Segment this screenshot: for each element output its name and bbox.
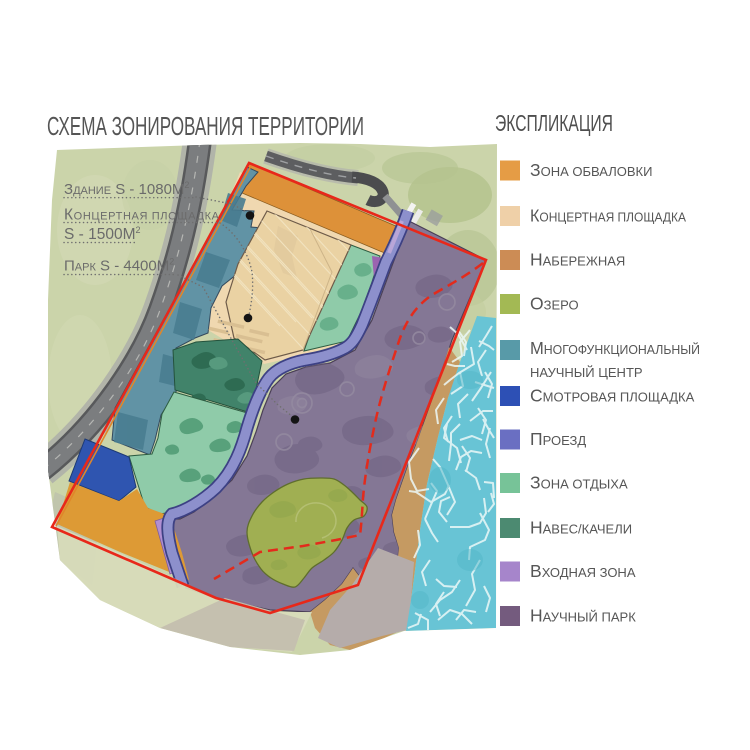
svg-text:НАУЧНЫЙ ПАРК: НАУЧНЫЙ ПАРК — [530, 606, 636, 626]
svg-text:НАУЧНЫЙ ЦЕНТР: НАУЧНЫЙ ЦЕНТР — [530, 365, 643, 380]
svg-text:S - 1500М2: S - 1500М2 — [64, 225, 141, 243]
svg-text:НАВЕС/КАЧЕЛИ: НАВЕС/КАЧЕЛИ — [530, 518, 632, 538]
svg-text:ЗОНА ОТДЫХА: ЗОНА ОТДЫХА — [530, 473, 628, 493]
svg-text:СХЕМА ЗОНИРОВАНИЯ ТЕРРИТОРИИ: СХЕМА ЗОНИРОВАНИЯ ТЕРРИТОРИИ — [47, 113, 364, 141]
svg-text:НАБЕРЕЖНАЯ: НАБЕРЕЖНАЯ — [530, 250, 625, 270]
svg-text:ЗОНА ОБВАЛОВКИ: ЗОНА ОБВАЛОВКИ — [530, 160, 652, 180]
svg-text:ВХОДНАЯ ЗОНА: ВХОДНАЯ ЗОНА — [530, 561, 636, 581]
svg-text:ПРОЕЗД: ПРОЕЗД — [530, 429, 586, 449]
svg-text:ЭКСПЛИКАЦИЯ: ЭКСПЛИКАЦИЯ — [495, 110, 613, 136]
svg-text:ОЗЕРО: ОЗЕРО — [530, 294, 579, 314]
svg-text:КОНЦЕРТНАЯ ПЛОЩАДКА: КОНЦЕРТНАЯ ПЛОЩАДКА — [530, 206, 686, 226]
svg-text:МНОГОФУНКЦИОНАЛЬНЫЙ: МНОГОФУНКЦИОНАЛЬНЫЙ — [530, 338, 700, 358]
svg-text:СМОТРОВАЯ ПЛОЩАДКА: СМОТРОВАЯ ПЛОЩАДКА — [530, 386, 695, 406]
